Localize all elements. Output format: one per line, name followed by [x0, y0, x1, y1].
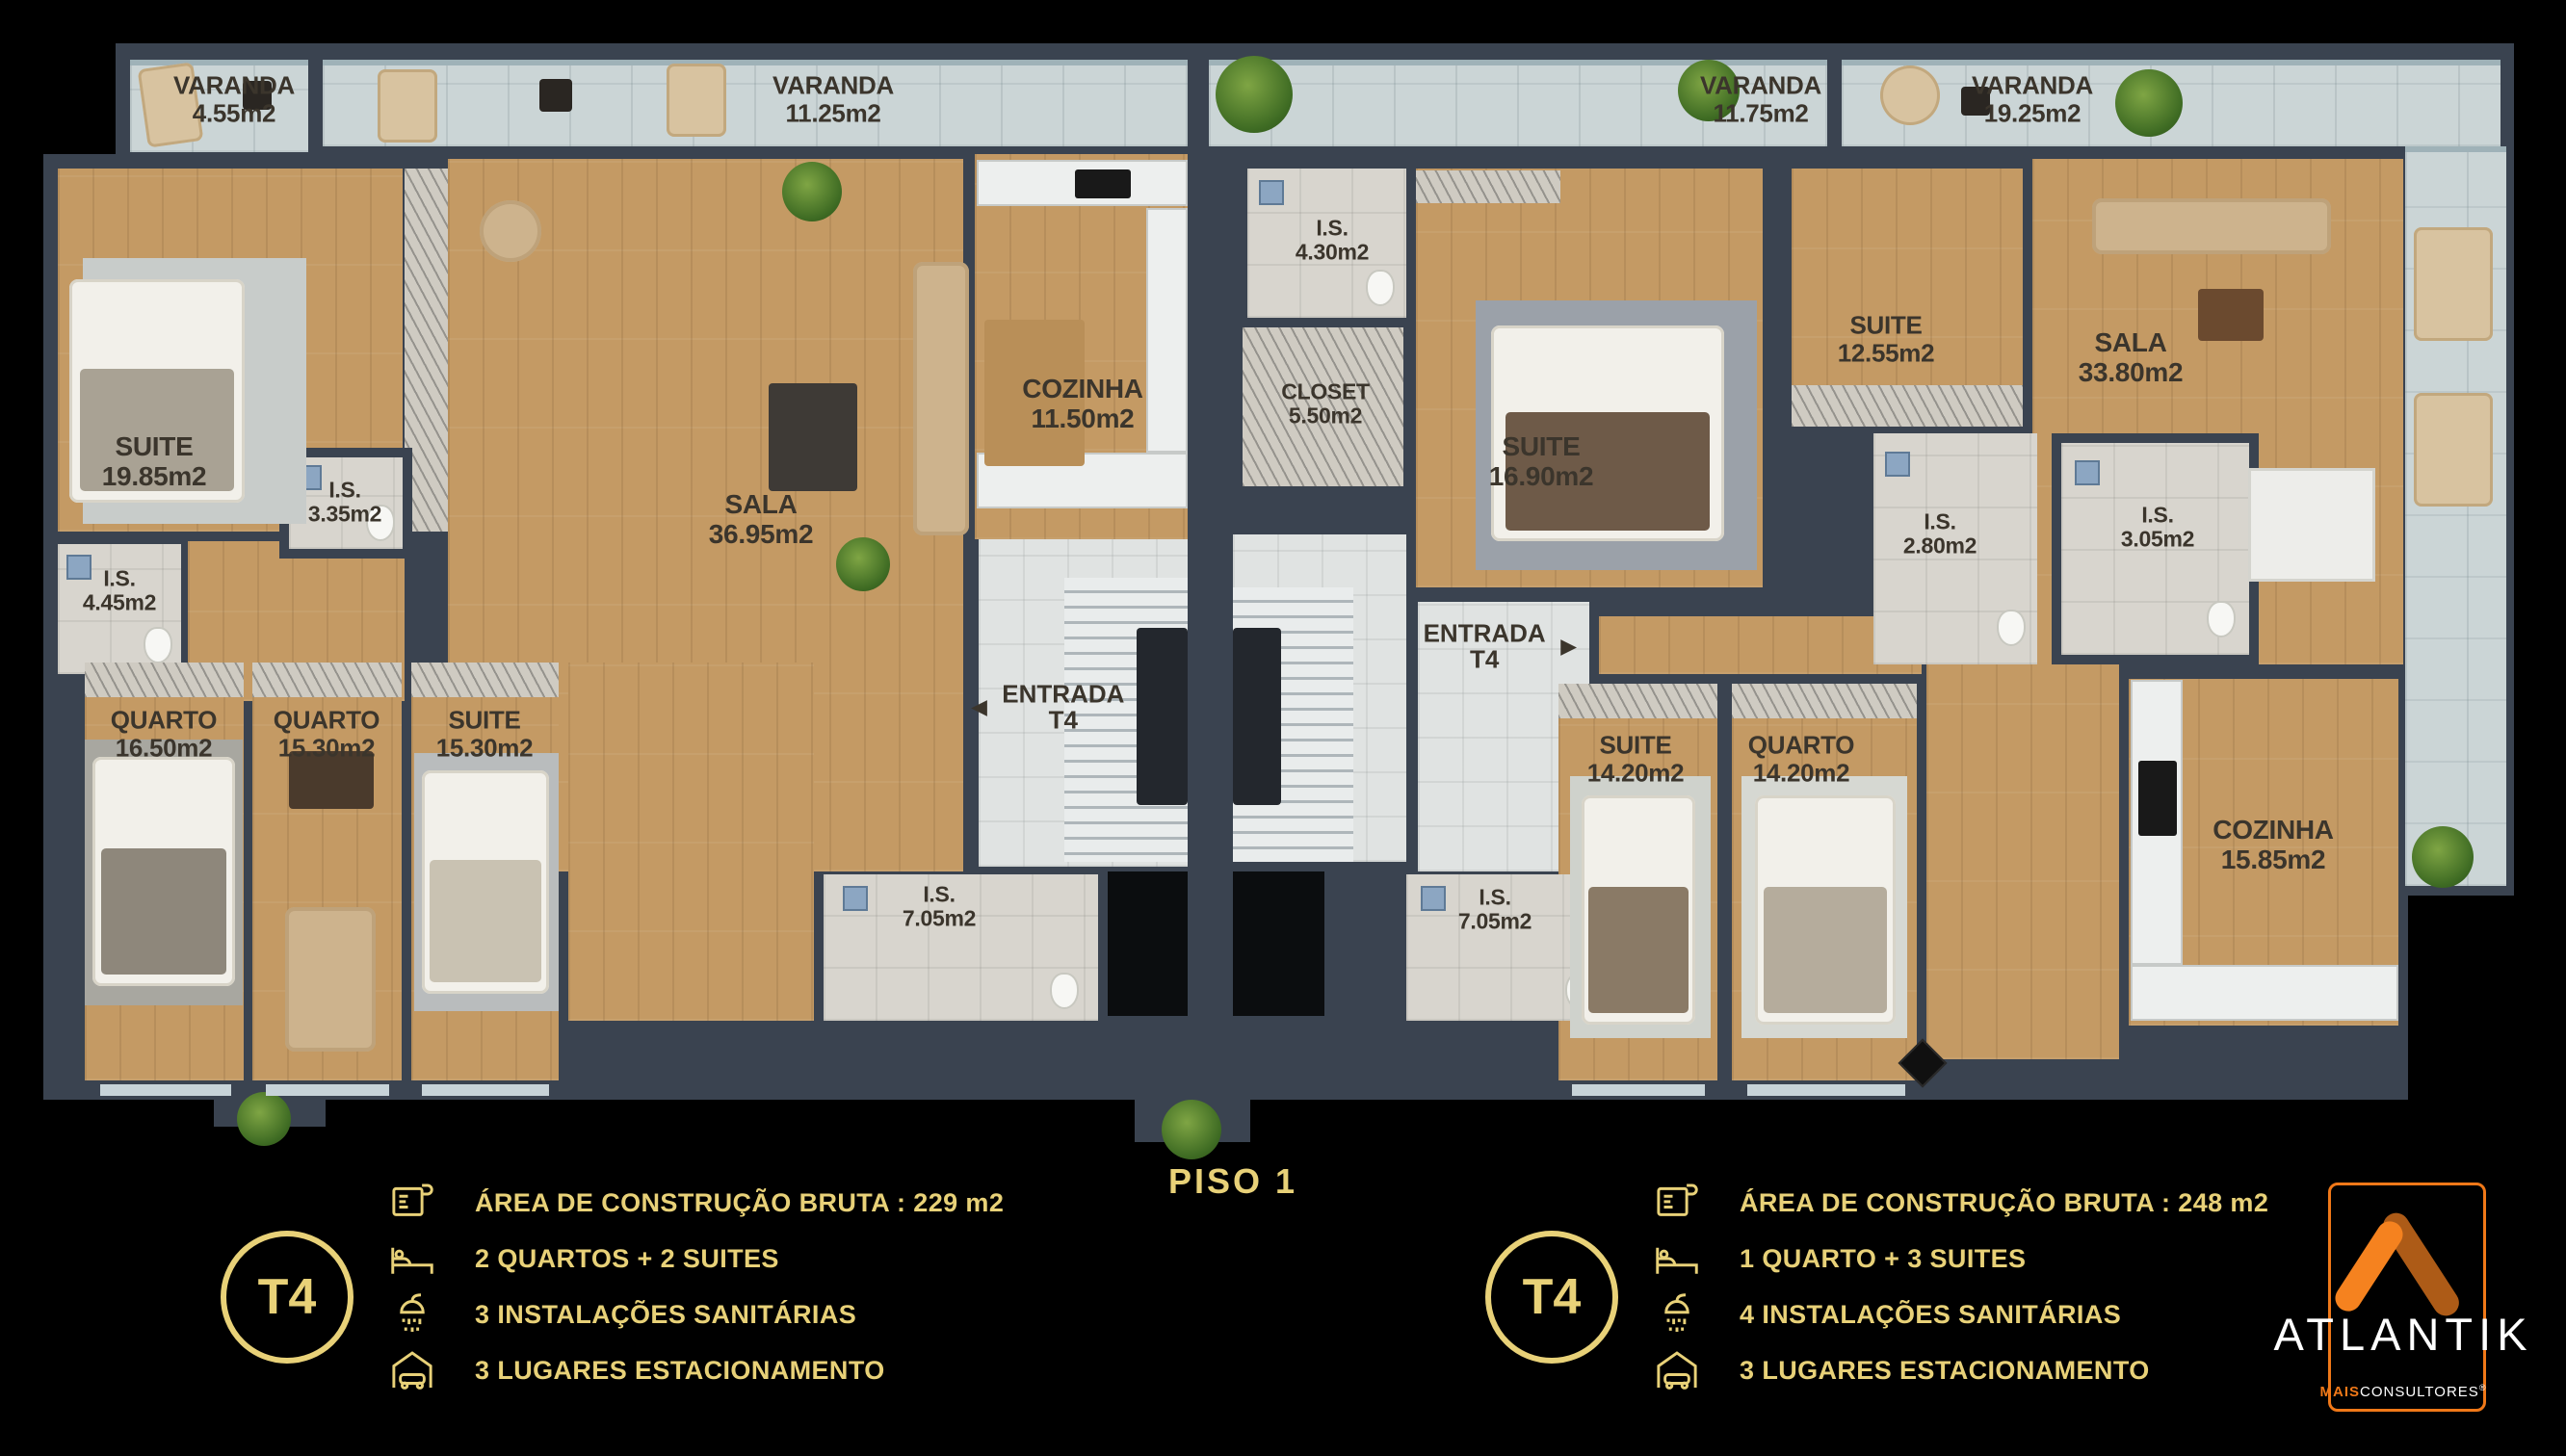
- window: [1747, 1084, 1905, 1096]
- sofa: [2092, 198, 2331, 254]
- plant: [1216, 56, 1293, 133]
- elevator-void: [1233, 871, 1324, 1016]
- room-label-is-335: I.S.3.35m2: [308, 479, 381, 528]
- room-label-suite-1530: SUITE15.30m2: [436, 706, 534, 761]
- shower-icon: [1651, 1288, 1703, 1340]
- room-label-is-445: I.S.4.45m2: [83, 567, 156, 616]
- room-label-varanda-455: VARANDA4.55m2: [173, 71, 295, 126]
- room-label-is-430: I.S.4.30m2: [1296, 217, 1369, 266]
- deck-chair: [378, 69, 437, 143]
- stair-landing: [1233, 628, 1281, 805]
- room-label-suite-1420: SUITE14.20m2: [1587, 731, 1685, 786]
- room-label-suite-1985: SUITE19.85m2: [102, 432, 206, 492]
- wardrobe-strip: [1558, 684, 1717, 718]
- spec-row-bathrooms: 3 INSTALAÇÕES SANITÁRIAS: [386, 1287, 1004, 1342]
- plant: [1162, 1100, 1221, 1159]
- room-label-is-705-left: I.S.7.05m2: [903, 883, 976, 932]
- wardrobe-strip: [1416, 170, 1560, 203]
- unit-right-legend: T4 ÁREA DE CONSTRUÇÃO BRUTA : 248 m2 1 Q…: [1472, 1167, 2165, 1446]
- room-label-quarto-1420: QUARTO14.20m2: [1748, 731, 1854, 786]
- daybed: [285, 907, 376, 1052]
- spec-row-bedrooms: 1 QUARTO + 3 SUITES: [1651, 1231, 2268, 1287]
- coffee-table: [2198, 289, 2264, 341]
- page-title: PISO 1: [1168, 1161, 1297, 1202]
- room-label-is-280: I.S.2.80m2: [1903, 510, 1977, 559]
- armchair: [480, 200, 541, 262]
- shower-icon: [386, 1288, 438, 1340]
- bed: [1755, 795, 1896, 1025]
- room-label-suite-1255: SUITE12.55m2: [1838, 311, 1935, 366]
- room-label-quarto-1530: QUARTO15.30m2: [274, 706, 380, 761]
- window: [100, 1084, 231, 1096]
- plant: [237, 1092, 291, 1146]
- entrada-label-right: ENTRADAT4 ►: [1424, 621, 1583, 674]
- kitchen-counter: [2131, 965, 2398, 1021]
- plant: [836, 537, 890, 591]
- unit-left-legend: T4 ÁREA DE CONSTRUÇÃO BRUTA : 229 m2 2 Q…: [207, 1167, 901, 1446]
- cooktop: [2138, 761, 2177, 836]
- blanket: [1764, 887, 1888, 1013]
- wardrobe-strip: [1732, 684, 1917, 718]
- atlantik-subtitle: MAISCONSULTORES®: [2307, 1383, 2500, 1400]
- deck-chair: [667, 64, 726, 137]
- room-label-sala-3380: SALA33.80m2: [2079, 328, 2183, 388]
- floor-corridor-b: [1926, 616, 2119, 1059]
- spec-row-parking: 3 LUGARES ESTACIONAMENTO: [386, 1342, 1004, 1398]
- garage-icon: [386, 1344, 438, 1396]
- deck-chair: [2414, 393, 2493, 507]
- wardrobe-strip: [252, 663, 402, 697]
- plant: [2115, 69, 2183, 137]
- garage-icon: [1651, 1344, 1703, 1396]
- entrada-label-left: ◄ ENTRADAT4: [966, 682, 1125, 735]
- kitchen-counter: [1146, 208, 1188, 453]
- floor-hall-a2: [568, 663, 814, 1021]
- dining-table: [2248, 468, 2375, 582]
- bed-icon: [1651, 1233, 1703, 1285]
- deck-chair: [2414, 227, 2493, 341]
- bed: [92, 757, 235, 986]
- wardrobe-strip: [411, 663, 559, 697]
- window: [266, 1084, 389, 1096]
- window: [1572, 1084, 1705, 1096]
- arrow-right-icon: ►: [1556, 632, 1583, 663]
- room-label-varanda-1175: VARANDA11.75m2: [1700, 71, 1821, 126]
- wardrobe-strip: [85, 663, 244, 697]
- floor-varanda-1125: [323, 60, 1188, 146]
- plant: [782, 162, 842, 221]
- typology-badge: T4: [221, 1231, 353, 1364]
- hanging-chair: [1880, 65, 1940, 125]
- room-label-cozinha-1150: COZINHA11.50m2: [1022, 375, 1142, 434]
- sofa: [913, 262, 969, 535]
- blanket: [430, 860, 541, 983]
- room-label-closet-550: CLOSET5.50m2: [1281, 380, 1369, 429]
- blueprint-icon: [1651, 1177, 1703, 1229]
- room-label-varanda-1925: VARANDA19.25m2: [1972, 71, 2093, 126]
- bed: [1582, 795, 1695, 1025]
- room-label-cozinha-1585: COZINHA15.85m2: [2213, 816, 2333, 875]
- room-label-is-705-right: I.S.7.05m2: [1458, 886, 1532, 935]
- blueprint-icon: [386, 1177, 438, 1229]
- room-label-varanda-1125: VARANDA11.25m2: [772, 71, 894, 126]
- floorplan-page: VARANDA4.55m2 VARANDA11.25m2 SUITE19.85m…: [0, 0, 2566, 1456]
- typology-badge: T4: [1485, 1231, 1618, 1364]
- blanket: [1588, 887, 1689, 1013]
- room-label-quarto-1650: QUARTO16.50m2: [111, 706, 217, 761]
- elevator-void: [1108, 871, 1188, 1016]
- bed: [422, 770, 549, 994]
- wardrobe-strip: [1792, 385, 2023, 427]
- arrow-left-icon: ◄: [966, 692, 993, 723]
- cooktop: [1075, 169, 1131, 198]
- room-label-suite-1690: SUITE16.90m2: [1489, 432, 1593, 492]
- room-label-is-305: I.S.3.05m2: [2121, 504, 2194, 553]
- coffee-table: [769, 383, 857, 491]
- spec-row-area: ÁREA DE CONSTRUÇÃO BRUTA : 248 m2: [1651, 1175, 2268, 1231]
- plant: [2412, 826, 2474, 888]
- side-table: [539, 79, 572, 112]
- bed-icon: [386, 1233, 438, 1285]
- blanket: [101, 848, 226, 975]
- spec-row-parking: 3 LUGARES ESTACIONAMENTO: [1651, 1342, 2268, 1398]
- window: [422, 1084, 549, 1096]
- spec-row-area: ÁREA DE CONSTRUÇÃO BRUTA : 229 m2: [386, 1175, 1004, 1231]
- stair-landing: [1137, 628, 1188, 805]
- atlantik-wordmark: ATLANTIK: [2259, 1308, 2548, 1361]
- spec-row-bedrooms: 2 QUARTOS + 2 SUITES: [386, 1231, 1004, 1287]
- spec-row-bathrooms: 4 INSTALAÇÕES SANITÁRIAS: [1651, 1287, 2268, 1342]
- room-label-sala-3695: SALA36.95m2: [709, 490, 813, 550]
